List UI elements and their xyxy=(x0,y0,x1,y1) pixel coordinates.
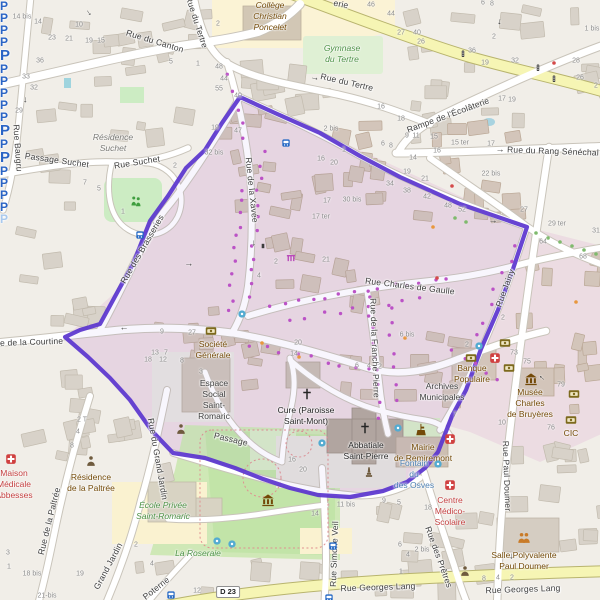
map-canvas[interactable]: Rue du CantonRue du TertreRue du Tertree… xyxy=(0,0,600,600)
place-label-line: Médicale xyxy=(0,479,33,490)
bank-icon xyxy=(499,337,511,349)
traffic-icon xyxy=(459,50,467,58)
place-label-line: Paul Doumer xyxy=(491,561,556,572)
redcross-icon xyxy=(490,353,501,364)
house-number: 1 xyxy=(196,61,200,68)
oneway-arrow-icon: → xyxy=(184,258,194,269)
house-number: 36 xyxy=(36,58,44,65)
place-label-line: La Roseraie xyxy=(175,548,221,559)
place-label-espace-social: EspaceSocialSaint-Romaric xyxy=(198,378,230,422)
museum-icon xyxy=(525,373,538,386)
house-number: 1 xyxy=(399,569,403,576)
fountain-icon xyxy=(213,537,222,546)
house-number: 20 xyxy=(299,467,307,474)
place-label-residence-suchet: RésidenceSuchet xyxy=(93,132,133,154)
place-label-line: Saint-Mont) xyxy=(278,416,335,427)
parking-icon: P xyxy=(0,165,600,177)
place-label-line: Social xyxy=(198,389,230,400)
house-number: 12 xyxy=(193,588,201,595)
street-label-rue-charles-de-gaulle: Rue Charles de Gaulle xyxy=(365,276,456,297)
street-label-rue-du-grand-jardin: Rue du Grand Jardin xyxy=(146,417,170,500)
house-number: 26 xyxy=(576,75,584,82)
house-number: 26 xyxy=(417,39,425,46)
fountain-icon xyxy=(434,460,443,469)
place-label-line: Société xyxy=(196,339,231,350)
bus-icon xyxy=(329,542,338,551)
place-label-line: du xyxy=(394,469,434,480)
house-number: 6 xyxy=(355,363,359,370)
place-label-societe-generale: SociétéGénérale xyxy=(196,339,231,361)
bank-icon xyxy=(465,352,477,364)
place-label-line: CIC xyxy=(564,428,579,439)
place-label-line: de Bruyères xyxy=(507,409,553,420)
house-number: 21-bis xyxy=(37,593,56,600)
house-number: 14 xyxy=(290,351,298,358)
house-number: 1 xyxy=(121,209,125,216)
person-icon xyxy=(86,456,97,467)
house-number: 4 xyxy=(367,363,371,370)
place-label-college: CollègeChristianPoncelet xyxy=(253,0,287,33)
place-label-line: Scolaire xyxy=(435,517,466,528)
street-label-passage: Passage xyxy=(213,430,249,448)
house-number: 7 xyxy=(83,180,87,187)
house-number: 8 xyxy=(70,443,74,450)
house-number: 1 xyxy=(7,564,11,571)
house-number: 6 xyxy=(381,141,385,148)
house-number: 2 xyxy=(134,542,138,549)
house-number: 48 xyxy=(444,203,452,210)
house-number: 8 xyxy=(180,358,184,365)
place-label-line: Mairie xyxy=(394,442,452,453)
place-label-line: Saint-Romaric xyxy=(136,511,190,522)
house-number: 16 xyxy=(288,457,296,464)
house-number: 68 xyxy=(579,254,587,261)
house-number: 18 xyxy=(397,116,405,123)
house-number: 17 ter xyxy=(312,214,330,221)
house-number: 27 xyxy=(397,30,405,37)
street-label-rue-georges-lang: Rue Georges Lang xyxy=(340,581,415,594)
house-number: 32 xyxy=(511,58,519,65)
house-number: 5 xyxy=(97,186,101,193)
parking-icon: P xyxy=(0,48,600,63)
house-number: 75 xyxy=(523,359,531,366)
place-label-la-roseraie: La Roseraie xyxy=(175,548,221,559)
house-number: 2 xyxy=(378,364,382,371)
house-number: 15 xyxy=(97,38,105,45)
parking-icon: P xyxy=(0,75,600,87)
bank-icon xyxy=(565,414,577,426)
bus-icon xyxy=(167,591,176,600)
place-label-fontaine: Fontaindudes Osves xyxy=(394,458,434,491)
redcross-icon xyxy=(445,434,456,445)
house-number: 32 xyxy=(30,85,38,92)
cross-icon xyxy=(301,388,313,400)
house-number: 14 bis xyxy=(13,14,32,21)
house-number: 19 xyxy=(211,125,219,132)
house-number: 8 xyxy=(389,143,393,150)
house-number: 17 xyxy=(323,198,331,205)
house-number: 16 xyxy=(433,148,441,155)
place-label-centre-medico: CentreMédico-Scolaire xyxy=(435,495,466,528)
place-label-line: Romaric xyxy=(198,411,230,422)
person-icon xyxy=(176,424,187,435)
place-label-line: Médico- xyxy=(435,506,466,517)
house-number: 6 xyxy=(481,0,485,7)
house-number: 28 xyxy=(572,58,580,65)
bus-icon xyxy=(136,231,145,240)
house-number: 2 xyxy=(510,575,514,582)
traffic-icon xyxy=(550,75,558,83)
house-number: 9 xyxy=(405,133,409,140)
house-number: 20 xyxy=(330,160,338,167)
place-label-line: des Osves xyxy=(394,480,434,491)
house-number: 14 xyxy=(34,19,42,26)
house-number: 21 xyxy=(65,36,73,43)
house-number: 14 xyxy=(311,511,319,518)
house-number: 7 xyxy=(453,412,457,419)
place-label-line: Banque xyxy=(454,363,490,374)
redcross-icon xyxy=(445,480,456,491)
parking-icon: P xyxy=(0,24,600,36)
traffic-icon xyxy=(534,64,542,72)
bus-icon xyxy=(282,139,291,148)
house-number: 46 xyxy=(367,2,375,9)
redcross-icon xyxy=(6,454,17,465)
place-label-line: Populaire xyxy=(454,374,490,385)
place-label-banque-populaire: BanquePopulaire xyxy=(454,363,490,385)
house-number: 40 xyxy=(413,30,421,37)
house-number: 2 xyxy=(216,21,220,28)
place-label-line: Suchet xyxy=(93,143,133,154)
place-label-line: Centre xyxy=(435,495,466,506)
house-number: 40 xyxy=(234,93,242,100)
house-number: 13 xyxy=(151,350,159,357)
street-label-grand-jardin: Grand Jardin xyxy=(91,541,124,591)
street-label-rue-des-pr-tres: Rue des Prêtres xyxy=(423,525,454,589)
place-label-line: Espace xyxy=(198,378,230,389)
house-number: 2 xyxy=(501,315,505,322)
house-number: 6 xyxy=(398,542,402,549)
house-number: 32 bis xyxy=(205,150,224,157)
oneway-arrow-icon: → xyxy=(22,95,33,105)
house-number: 27 xyxy=(520,207,528,214)
house-number: 1 xyxy=(342,147,346,154)
house-number: 11 xyxy=(412,133,419,140)
house-number: 42 xyxy=(423,194,431,201)
house-number: 16 xyxy=(317,156,325,163)
house-number: 9 xyxy=(382,498,386,505)
townhall-icon xyxy=(415,424,428,437)
house-number: 29 xyxy=(15,108,23,115)
house-number: 4 xyxy=(257,273,261,280)
house-number: 2 xyxy=(492,34,496,41)
place-label-line: Salle Polyvalente xyxy=(491,550,556,561)
parking-icon: P xyxy=(0,177,600,189)
fountain-icon xyxy=(238,310,247,319)
place-label-cic: CIC xyxy=(564,428,579,439)
oneway-arrow-icon: → xyxy=(508,552,518,561)
house-number: 18 xyxy=(424,505,432,512)
bank-icon xyxy=(503,362,515,374)
private-parking-icon: P xyxy=(0,213,600,225)
house-number: 18 bis xyxy=(23,571,42,578)
bank-icon xyxy=(568,388,580,400)
house-number: 19 xyxy=(85,38,93,45)
house-number: 55 xyxy=(215,86,223,93)
house-number: 47 xyxy=(234,128,242,135)
house-number: 15 xyxy=(430,134,438,141)
house-number: 16 xyxy=(377,104,385,111)
house-number: 20 xyxy=(294,340,302,347)
place-label-gymnase: Gymnasedu Tertre xyxy=(324,43,360,65)
road-ref-shield: D 23 xyxy=(216,586,240,598)
house-number: 19 xyxy=(481,60,489,67)
street-label-rue-jainy: Rue Jainy xyxy=(494,268,517,309)
house-number: 9 xyxy=(160,329,164,336)
place-label-line: Abbesses xyxy=(0,490,33,501)
house-number: 15 ter xyxy=(451,140,469,147)
parking-icon: P xyxy=(0,63,600,75)
place-label-ecole-privee: École PrivéeSaint-Romaric xyxy=(136,500,190,522)
oneway-arrow-icon: → xyxy=(495,17,506,28)
house-number: 2 xyxy=(465,342,469,349)
house-number: 6 bis xyxy=(400,332,415,339)
place-label-line: Saint-Pierre xyxy=(344,451,389,462)
place-label-line: Poncelet xyxy=(253,22,287,33)
house-number: 52 xyxy=(458,207,466,214)
house-number: 27 xyxy=(188,330,196,337)
playground-icon xyxy=(130,195,142,207)
house-number: 2 xyxy=(594,83,598,90)
house-number: 8 xyxy=(482,576,486,583)
house-number: 76 xyxy=(547,425,555,432)
two-person-icon xyxy=(518,532,531,545)
attraction-icon xyxy=(286,252,297,263)
house-number: 44 xyxy=(387,11,395,18)
house-number: 22 bis xyxy=(482,171,501,178)
parking-icon: P xyxy=(0,111,600,123)
place-label-salle-polyvalente: Salle PolyvalentePaul Doumer xyxy=(491,550,556,572)
house-number: 79 xyxy=(557,382,565,389)
house-number: 3 xyxy=(199,369,203,376)
map-overlay: Rue du CantonRue du TertreRue du Tertree… xyxy=(0,0,600,600)
street-label-rue-de-la-paltr-e: Rue de la Paltrée xyxy=(36,486,62,555)
house-number: 4 xyxy=(406,552,410,559)
place-label-line: Municipales xyxy=(420,392,465,403)
museum-icon xyxy=(262,494,275,507)
place-label-musee-bruyeres: MuséeCharlesde Bruyères xyxy=(507,387,553,420)
oneway-arrow-icon: ← xyxy=(120,322,129,332)
house-number: 5 xyxy=(169,59,173,66)
house-number: 1 bis xyxy=(585,26,600,33)
place-label-line: Musée xyxy=(507,387,553,398)
house-number: 30 bis xyxy=(343,197,362,204)
fountain-icon xyxy=(318,439,327,448)
house-number: 19 xyxy=(403,169,411,176)
monument-icon xyxy=(364,467,375,478)
house-number: 2 bis xyxy=(415,547,430,554)
house-number: 12 xyxy=(159,357,167,364)
house-number: 17 xyxy=(487,141,495,148)
place-label-line: Charles xyxy=(507,398,553,409)
house-number: 21 xyxy=(322,257,330,264)
house-number: 64 xyxy=(539,239,547,246)
house-number: 2 T xyxy=(77,417,87,424)
bank-icon xyxy=(205,325,217,337)
house-number: 31 xyxy=(592,228,600,235)
house-number: 2 bis xyxy=(324,126,339,133)
house-number: 7 xyxy=(164,350,168,357)
house-number: 3 xyxy=(6,550,10,557)
place-label-line: Saint- xyxy=(198,400,230,411)
place-label-line: Fontain xyxy=(394,458,434,469)
oneway-arrow-icon: → xyxy=(496,144,505,154)
place-label-line: Cure (Paroisse xyxy=(278,405,335,416)
house-number: 18 xyxy=(144,357,152,364)
place-label-abbatiale: AbbatialeSaint-Pierre xyxy=(344,440,389,462)
house-number: 4 xyxy=(150,561,154,568)
fountain-icon xyxy=(228,540,237,549)
place-label-line: Christian xyxy=(253,11,287,22)
house-number: 14 xyxy=(409,155,417,162)
fountain-icon xyxy=(475,342,484,351)
house-number: 8 xyxy=(490,1,494,8)
house-number: 21 xyxy=(421,176,429,183)
house-number: 19 xyxy=(76,571,84,578)
place-label-line: Résidence xyxy=(67,472,115,483)
house-number: 2 xyxy=(173,163,177,170)
parking-icon: P xyxy=(0,123,600,138)
house-number: 34 xyxy=(386,181,394,188)
street-label-rue-georges-lang: Rue Georges Lang xyxy=(485,583,560,596)
place-label-line: Générale xyxy=(196,350,231,361)
house-number: 2 xyxy=(274,259,278,266)
oneway-arrow-icon: → xyxy=(489,215,498,225)
street-label-rue-de-la-franche-pierre: Rue de la Franche Pierre xyxy=(368,298,381,398)
street-label-rue-simone-veil: Rue Simone Veil xyxy=(328,521,340,587)
house-number: 36 xyxy=(468,48,476,55)
house-number: 4 xyxy=(496,575,500,582)
house-number: 38 xyxy=(403,188,411,195)
house-number: 5 xyxy=(397,500,401,507)
house-number: 23 xyxy=(48,35,56,42)
house-number: 17 xyxy=(498,96,506,103)
house-number: 48 xyxy=(215,64,223,71)
house-number: 44 xyxy=(220,76,228,83)
place-label-line: Gymnase xyxy=(324,43,360,54)
place-label-line: du Tertre xyxy=(324,54,360,65)
house-number: 73 xyxy=(510,350,518,357)
place-label-cure: Cure (ParoisseSaint-Mont) xyxy=(278,405,335,427)
place-label-line: Collège xyxy=(253,0,287,11)
place-label-line: Abbatiale xyxy=(344,440,389,451)
place-label-line: Maison xyxy=(0,468,33,479)
parking-icon: P xyxy=(0,201,600,213)
street-label-rue-de-la-courtine: Rue de la Courtine xyxy=(0,336,63,349)
person-icon xyxy=(460,566,471,577)
street-label-rue-paul-doumer: Rue Paul Doumer xyxy=(501,441,513,512)
place-label-line: de la Paltrée xyxy=(67,483,115,494)
parking-icon: P xyxy=(0,189,600,201)
fountain-icon xyxy=(394,424,403,433)
gate-icon xyxy=(260,243,267,250)
house-number: 19 xyxy=(508,97,516,104)
house-number: 29 ter xyxy=(548,221,566,228)
house-number: 4 xyxy=(76,429,80,436)
place-label-line: École Privée xyxy=(136,500,190,511)
place-label-maison-medicale: MaisonMédicaleAbbesses xyxy=(0,468,33,501)
house-number: 10 xyxy=(75,22,83,29)
house-number: 11 bis xyxy=(337,502,355,509)
house-number: 33 xyxy=(22,74,30,81)
place-label-residence-paltree: Résidencede la Paltrée xyxy=(67,472,115,494)
place-label-line: Résidence xyxy=(93,132,133,143)
bus-icon xyxy=(325,594,334,600)
house-number: 10 xyxy=(498,420,506,427)
cross-icon xyxy=(359,422,371,434)
